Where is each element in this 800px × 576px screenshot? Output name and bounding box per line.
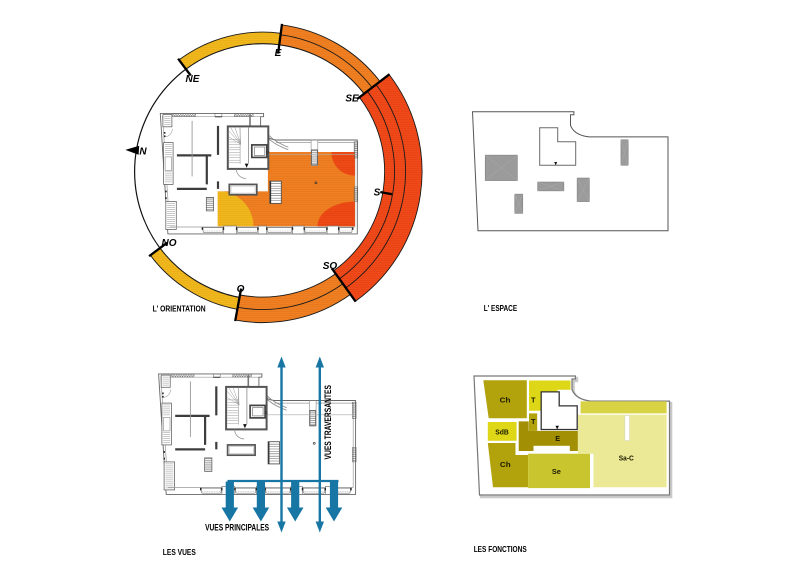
svg-text:VUES TRAVERSANTES: VUES TRAVERSANTES	[322, 385, 333, 460]
svg-text:Ch: Ch	[500, 396, 511, 405]
svg-text:O: O	[237, 284, 245, 295]
svg-text:LES VUES: LES VUES	[163, 548, 196, 557]
svg-text:T: T	[531, 395, 536, 404]
svg-text:LES FONCTIONS: LES FONCTIONS	[474, 545, 527, 554]
svg-text:E: E	[555, 434, 560, 443]
svg-text:S: S	[374, 188, 381, 199]
svg-text:E: E	[275, 48, 282, 59]
svg-text:Se: Se	[552, 467, 561, 476]
svg-text:L' ORIENTATION: L' ORIENTATION	[153, 304, 206, 313]
svg-text:L' ESPACE: L' ESPACE	[484, 304, 518, 313]
svg-text:Ch: Ch	[500, 460, 511, 469]
svg-text:T: T	[531, 417, 536, 426]
svg-text:SO: SO	[323, 261, 338, 272]
svg-text:SE: SE	[345, 94, 359, 105]
svg-text:NO: NO	[162, 238, 177, 249]
svg-text:N: N	[139, 147, 147, 158]
svg-text:Sa-C: Sa-C	[619, 454, 635, 463]
svg-text:NE: NE	[186, 74, 200, 85]
svg-text:VUES PRINCIPALES: VUES PRINCIPALES	[205, 523, 269, 534]
svg-text:SdB: SdB	[495, 427, 509, 436]
